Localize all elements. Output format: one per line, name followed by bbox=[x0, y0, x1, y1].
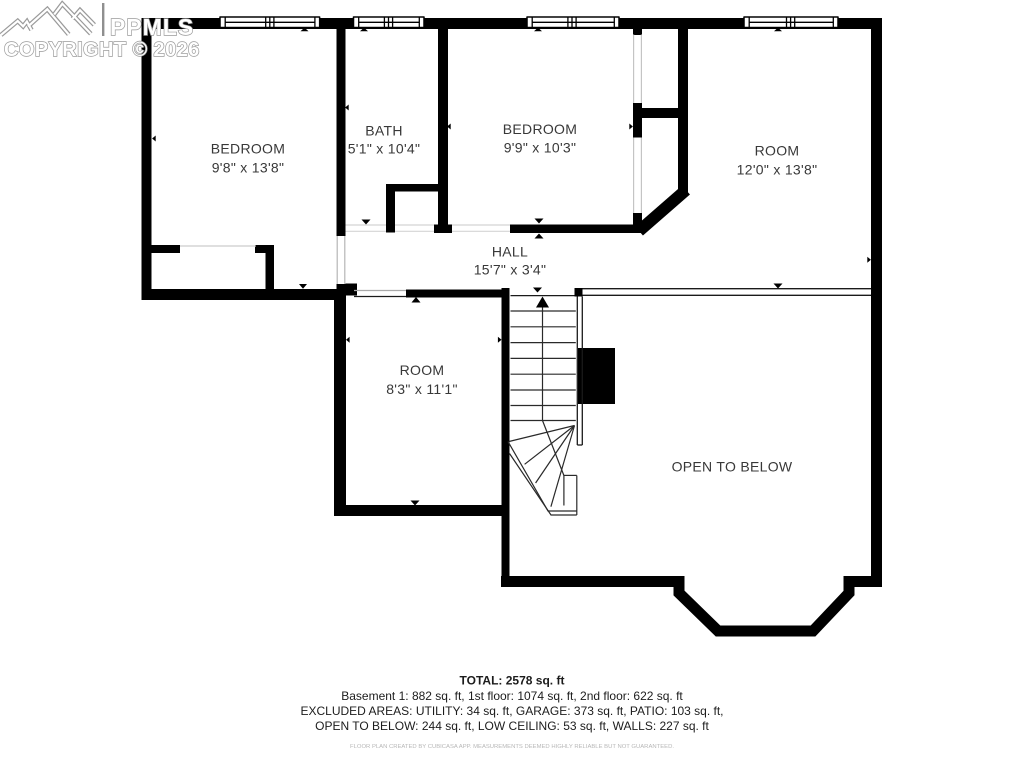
svg-text:5'1" x 10'4": 5'1" x 10'4" bbox=[348, 141, 421, 157]
svg-text:8'3" x 11'1": 8'3" x 11'1" bbox=[386, 381, 458, 397]
svg-text:COPYRIGHT © 2026: COPYRIGHT © 2026 bbox=[4, 39, 200, 61]
svg-text:OPEN TO BELOW: OPEN TO BELOW bbox=[672, 459, 793, 475]
svg-text:PPMLS: PPMLS bbox=[110, 14, 194, 40]
svg-text:15'7" x 3'4": 15'7" x 3'4" bbox=[474, 262, 547, 278]
svg-text:TOTAL: 2578 sq. ft: TOTAL: 2578 sq. ft bbox=[460, 674, 565, 688]
svg-text:OPEN TO BELOW: 244 sq. ft, LOW: OPEN TO BELOW: 244 sq. ft, LOW CEILING: … bbox=[315, 719, 709, 733]
svg-text:Basement 1: 882 sq. ft, 1st fl: Basement 1: 882 sq. ft, 1st floor: 1074 … bbox=[341, 689, 683, 703]
svg-text:FLOOR PLAN CREATED BY CUBICASA: FLOOR PLAN CREATED BY CUBICASA APP. MEAS… bbox=[350, 744, 674, 750]
svg-text:HALL: HALL bbox=[492, 244, 528, 260]
svg-text:BEDROOM: BEDROOM bbox=[503, 121, 577, 137]
svg-text:12'0" x 13'8": 12'0" x 13'8" bbox=[737, 162, 818, 178]
svg-text:BEDROOM: BEDROOM bbox=[211, 141, 285, 157]
svg-text:ROOM: ROOM bbox=[400, 362, 445, 378]
svg-text:BATH: BATH bbox=[365, 123, 403, 139]
svg-text:9'9" x 10'3": 9'9" x 10'3" bbox=[504, 140, 577, 156]
svg-text:EXCLUDED AREAS: UTILITY: 34 sq: EXCLUDED AREAS: UTILITY: 34 sq. ft, GARA… bbox=[300, 704, 723, 718]
svg-text:9'8" x 13'8": 9'8" x 13'8" bbox=[212, 160, 285, 176]
svg-text:ROOM: ROOM bbox=[755, 143, 800, 159]
